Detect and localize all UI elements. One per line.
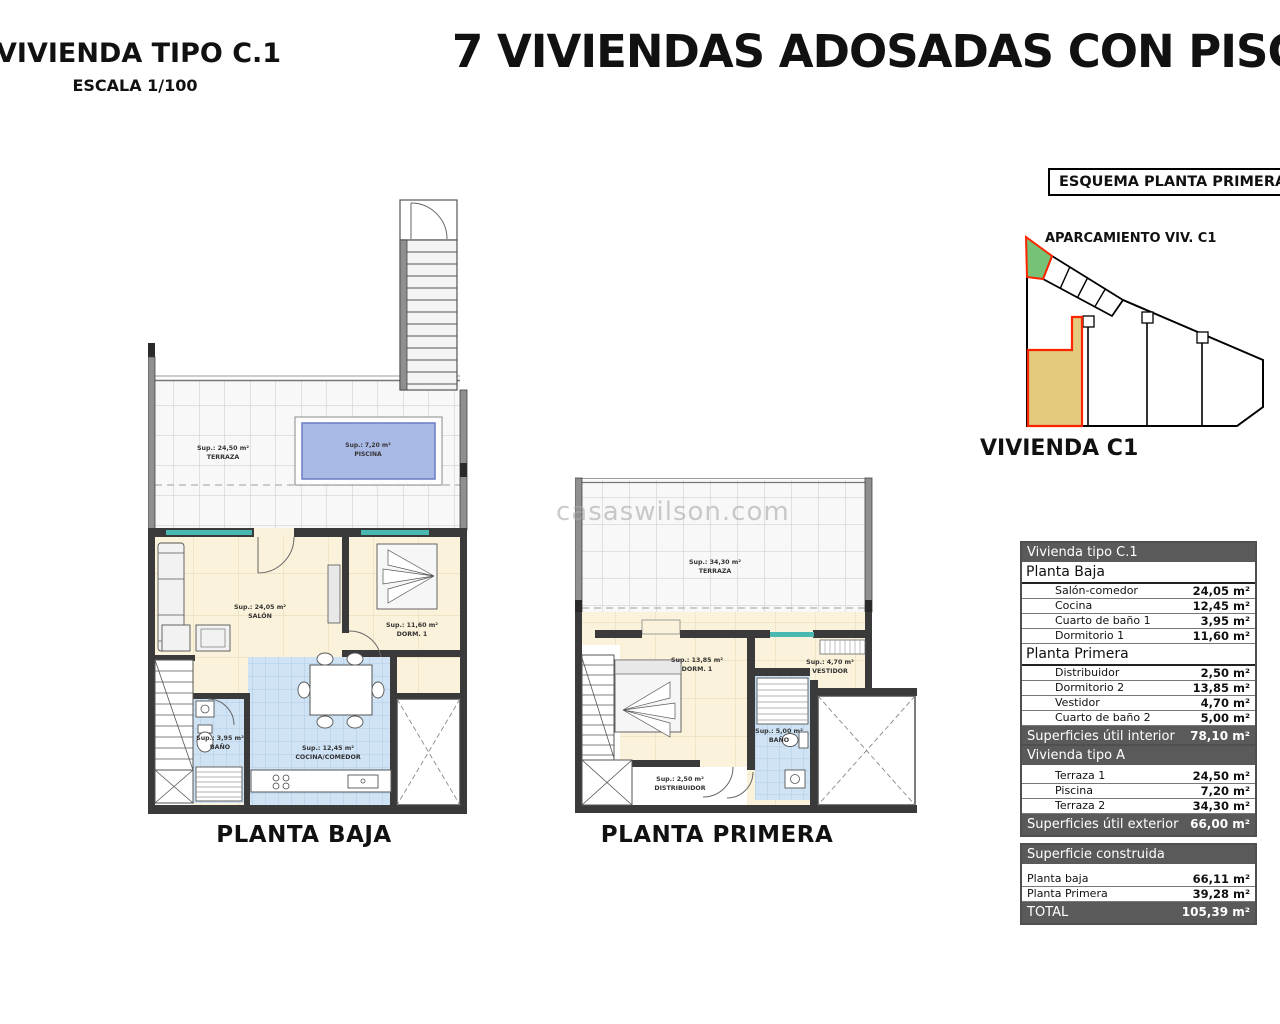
table-row: Terraza 1 24,50 m² (1022, 769, 1255, 784)
table-header: Vivienda tipo A (1022, 746, 1255, 765)
row-value: 7,20 m² (1201, 784, 1250, 798)
dorm1-sup-label: Sup.: 11,60 m² (386, 622, 438, 629)
bano-sup-label: Sup.: 3,95 m² (196, 735, 244, 742)
bed-dorm-first (615, 660, 681, 737)
footer-label: Superficies útil exterior (1027, 815, 1178, 834)
table-row: Cuarto de baño 2 5,00 m² (1022, 711, 1255, 726)
kitchen-counter (251, 770, 391, 792)
wardrobe (328, 565, 340, 623)
table-header: Superficie construida (1022, 845, 1255, 864)
salon-sup-label: Sup.: 24,05 m² (234, 604, 286, 611)
row-value: 39,28 m² (1193, 887, 1250, 901)
patio-x-area-first (818, 696, 915, 805)
row-value: 66,11 m² (1193, 872, 1250, 886)
cocina-sup-label: Sup.: 12,45 m² (302, 745, 354, 752)
interior-staircase (155, 660, 193, 803)
exterior-staircase (400, 200, 457, 390)
footer-value: 66,00 m² (1190, 815, 1250, 834)
table-row: Planta Primera 39,28 m² (1022, 887, 1255, 902)
row-label: Dormitorio 1 (1055, 629, 1124, 643)
row-value: 12,45 m² (1193, 599, 1250, 613)
row-value: 13,85 m² (1193, 681, 1250, 695)
table-footer: TOTAL 105,39 m² (1022, 902, 1255, 923)
row-value: 4,70 m² (1201, 696, 1250, 710)
caption-planta-primera: PLANTA PRIMERA (577, 822, 857, 848)
schema-title: ESQUEMA PLANTA PRIMERA (1048, 168, 1280, 196)
row-value: 5,00 m² (1201, 711, 1250, 725)
bed-dorm1 (377, 544, 437, 609)
table-row: Terraza 2 34,30 m² (1022, 799, 1255, 814)
pool-sup-label: Sup.: 7,20 m² (345, 442, 391, 449)
row-label: Cocina (1055, 599, 1092, 613)
patio-x-area (397, 699, 460, 805)
dorm-first-sup-label: Sup.: 13,85 m² (671, 657, 723, 664)
table-row: Dormitorio 2 13,85 m² (1022, 681, 1255, 696)
unit-label: VIVIENDA C1 (980, 436, 1138, 461)
table-superficie-construida: Superficie construida Planta baja 66,11 … (1020, 843, 1257, 925)
row-value: 11,60 m² (1193, 629, 1250, 643)
distribuidor-name-label: DISTRIBUIDOR (654, 785, 705, 792)
dorm-first-name-label: DORM. 1 (682, 666, 713, 673)
table-row: Cocina 12,45 m² (1022, 599, 1255, 614)
terraza2-sup-label: Sup.: 34,30 m² (689, 559, 741, 566)
row-value: 34,30 m² (1193, 799, 1250, 813)
bano2-sup-label: Sup.: 5,00 m² (755, 728, 803, 735)
table-superficies-interior: Vivienda tipo C.1 Planta Baja Salón-come… (1020, 541, 1257, 749)
pool: Sup.: 7,20 m² PISCINA (295, 417, 442, 485)
table-footer: Superficies útil exterior 66,00 m² (1022, 814, 1255, 835)
row-label: Piscina (1055, 784, 1093, 798)
row-label: Salón-comedor (1055, 584, 1138, 598)
table-header: Vivienda tipo C.1 (1022, 543, 1255, 562)
armchairs (162, 625, 230, 651)
plan-type-title: VIVIENDA TIPO C.1 (0, 38, 281, 69)
cocina-name-label: COCINA/COMEDOR (295, 754, 361, 761)
plan-sheet: VIVIENDA TIPO C.1 ESCALA 1/100 7 VIVIEND… (0, 0, 1280, 1024)
floor-plan-planta-baja: Sup.: 7,20 m² PISCINA Sup.: 24,50 m² TER… (148, 195, 468, 817)
table-row: Distribuidor 2,50 m² (1022, 666, 1255, 681)
row-label: Terraza 1 (1055, 769, 1105, 783)
caption-planta-baja: PLANTA BAJA (164, 822, 444, 848)
site-schema-diagram (1012, 230, 1274, 435)
table-row: Piscina 7,20 m² (1022, 784, 1255, 799)
row-label: Vestidor (1055, 696, 1100, 710)
main-title: 7 VIVIENDAS ADOSADAS CON PISCINA (452, 25, 1280, 78)
row-label: Cuarto de baño 1 (1055, 614, 1151, 628)
dorm1-name-label: DORM. 1 (397, 631, 428, 638)
row-value: 2,50 m² (1201, 666, 1250, 680)
table-row: Planta baja 66,11 m² (1022, 872, 1255, 887)
row-label: Planta baja (1027, 872, 1088, 886)
row-value: 24,50 m² (1193, 769, 1250, 783)
table-row: Salón-comedor 24,05 m² (1022, 584, 1255, 599)
table-row: Vestidor 4,70 m² (1022, 696, 1255, 711)
vestidor-wardrobe (820, 640, 865, 654)
row-value: 24,05 m² (1193, 584, 1250, 598)
watermark: casaswilson.com (556, 497, 790, 527)
table-row: Cuarto de baño 1 3,95 m² (1022, 614, 1255, 629)
scale-label: ESCALA 1/100 (0, 76, 274, 95)
distribuidor-sup-label: Sup.: 2,50 m² (656, 776, 704, 783)
terraza2-name-label: TERRAZA (699, 568, 732, 575)
pool-name-label: PISCINA (354, 451, 382, 458)
row-value: 3,95 m² (1201, 614, 1250, 628)
row-label: Planta Primera (1027, 887, 1108, 901)
terrace-name-label: TERRAZA (207, 454, 240, 461)
footer-value: 105,39 m² (1182, 903, 1250, 922)
salon-name-label: SALÓN (248, 611, 272, 620)
table-superficies-exterior: Vivienda tipo A Terraza 1 24,50 m² Pisci… (1020, 744, 1257, 837)
vestidor-name-label: VESTIDOR (812, 668, 848, 675)
section-header-planta-primera: Planta Primera (1022, 644, 1255, 666)
table-row: Dormitorio 1 11,60 m² (1022, 629, 1255, 644)
vestidor-sup-label: Sup.: 4,70 m² (806, 659, 854, 666)
footer-label: TOTAL (1027, 903, 1068, 922)
row-label: Cuarto de baño 2 (1055, 711, 1151, 725)
terrace-sup-label: Sup.: 24,50 m² (197, 445, 249, 452)
bano-name-label: BAÑO (210, 742, 231, 751)
row-label: Distribuidor (1055, 666, 1119, 680)
bano2-name-label: BAÑO (769, 735, 790, 744)
row-label: Terraza 2 (1055, 799, 1105, 813)
row-label: Dormitorio 2 (1055, 681, 1124, 695)
section-header-planta-baja: Planta Baja (1022, 562, 1255, 584)
